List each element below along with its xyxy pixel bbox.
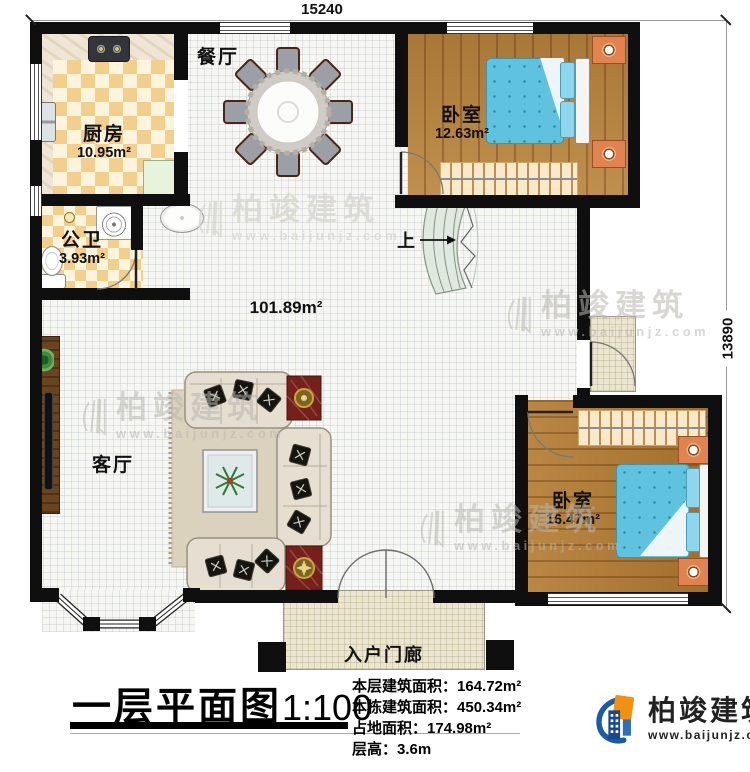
bath-lamp: [64, 212, 75, 223]
brand-logo: 柏竣建筑 www.baijunjz.com: [593, 692, 750, 745]
porch-label: 入户门廊: [344, 645, 424, 665]
window-kitchen: [30, 64, 42, 140]
wall-bedroom1-bottom: [395, 195, 640, 208]
stat-row: 层高：3.6m: [352, 739, 521, 760]
wall-bath-bottom: [30, 288, 190, 300]
dimension-line-top: [30, 20, 727, 21]
wall-living-bottom-right: [433, 590, 515, 603]
window-dining: [220, 22, 290, 34]
tv: [44, 392, 53, 490]
stat-row: 本层建筑面积：164.72m²: [352, 676, 521, 697]
stat-row: 占地面积：174.98m²: [352, 718, 521, 739]
hall-basin: [160, 203, 204, 233]
cooktop: [88, 36, 130, 62]
wall-living-bottom-left: [195, 590, 338, 603]
wall-bedroom2-top: [573, 395, 722, 408]
bedroom1-nightstand: [592, 140, 626, 168]
window-bedroom2: [548, 593, 688, 605]
window-bedroom1: [447, 22, 533, 34]
bedroom1-headboard: [575, 58, 590, 144]
bath-label: 公卫 3.93m²: [59, 231, 105, 267]
wall-mid-right: [577, 208, 590, 340]
brand-logo-text: 柏竣建筑 www.baijunjz.com: [648, 697, 750, 741]
wall-bedroom1-right: [628, 22, 640, 208]
wall-kitchen-bottom: [30, 194, 190, 206]
bedroom1-nightstand: [592, 36, 626, 64]
living-label: 客厅: [92, 456, 134, 476]
kitchen-label: 厨房 10.95m²: [77, 125, 131, 161]
wall-top: [30, 22, 640, 34]
side-door-gap: [577, 340, 590, 388]
wall-bedroom2-left: [515, 395, 528, 606]
bay-window-floor: [42, 590, 195, 632]
dimension-top-value: 15240: [292, 1, 352, 18]
porch-column-right: [486, 640, 514, 670]
building-stats: 本层建筑面积：164.72m² 本栋建筑面积：450.34m² 占地面积：174…: [352, 676, 521, 760]
window-bath: [30, 186, 42, 216]
brand-logo-icon: [593, 692, 640, 745]
bedroom1-label: 卧室 12.63m²: [435, 106, 489, 142]
wall-bath-right: [131, 206, 143, 250]
dimension-right-value: 13890: [720, 311, 737, 367]
wall-bedroom1-left: [395, 22, 408, 147]
wall-mid-right-stub: [577, 388, 590, 395]
bedroom2-label: 卧室 16.47m²: [546, 492, 600, 528]
side-landing-floor: [590, 316, 636, 392]
open-area-label: 101.89m²: [250, 298, 323, 318]
dining-label: 餐厅: [197, 48, 239, 68]
wall-kitchen-right-upper: [174, 34, 188, 80]
title-underline: [70, 722, 348, 729]
stat-row: 本栋建筑面积：450.34m²: [352, 697, 521, 718]
bedroom2-nightstand: [678, 436, 709, 464]
bedroom1-pillow: [560, 62, 575, 99]
bedroom1-wardrobe: [440, 162, 578, 196]
kitchen-doorway: [174, 80, 188, 152]
bedroom2-nightstand: [678, 558, 709, 586]
stairs-up-label: 上: [397, 227, 415, 253]
bedroom1-pillow: [560, 101, 575, 138]
porch-column-left: [258, 642, 286, 672]
fridge: [143, 160, 178, 196]
wall-bedroom2-right: [708, 395, 722, 606]
floor-plan-page: 厨房 10.95m² 餐厅 卧室 12.63m² 公卫 3.93m² 客厅 卧室…: [0, 0, 750, 772]
